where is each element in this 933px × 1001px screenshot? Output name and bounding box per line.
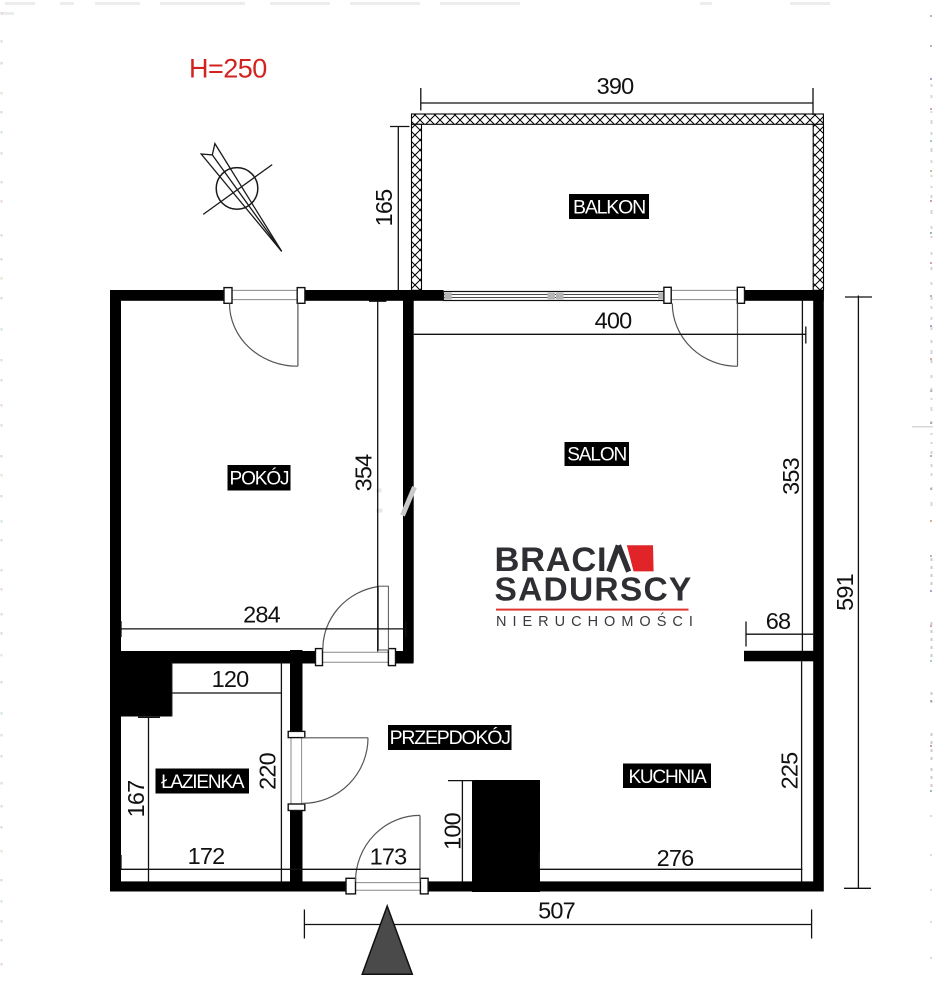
svg-text:KUCHNIA: KUCHNIA <box>628 767 707 788</box>
svg-text:165: 165 <box>371 189 397 227</box>
svg-text:390: 390 <box>597 73 635 99</box>
svg-text:NIERUCHOMOŚCI: NIERUCHOMOŚCI <box>496 612 699 630</box>
svg-text:ŁAZIENKA: ŁAZIENKA <box>161 772 245 793</box>
svg-text:354: 354 <box>351 454 377 492</box>
svg-text:SADURSCY: SADURSCY <box>495 572 693 609</box>
svg-text:591: 591 <box>832 574 858 611</box>
svg-text:120: 120 <box>212 666 250 692</box>
svg-text:100: 100 <box>440 812 466 850</box>
svg-text:172: 172 <box>188 843 225 869</box>
svg-text:PRZEPDOKÓJ: PRZEPDOKÓJ <box>390 726 511 749</box>
svg-text:173: 173 <box>370 844 408 870</box>
svg-text:BALKON: BALKON <box>573 196 645 218</box>
svg-text:167: 167 <box>123 781 149 818</box>
svg-text:400: 400 <box>595 308 633 334</box>
svg-text:353: 353 <box>778 457 804 495</box>
svg-text:POKÓJ: POKÓJ <box>230 467 290 489</box>
svg-text:220: 220 <box>255 752 281 790</box>
svg-text:225: 225 <box>777 752 803 790</box>
svg-text:284: 284 <box>243 602 281 628</box>
svg-text:H=250: H=250 <box>189 54 267 84</box>
svg-text:507: 507 <box>538 898 575 924</box>
svg-text:SALON: SALON <box>567 445 626 466</box>
svg-text:68: 68 <box>766 608 791 634</box>
svg-text:276: 276 <box>657 845 695 871</box>
